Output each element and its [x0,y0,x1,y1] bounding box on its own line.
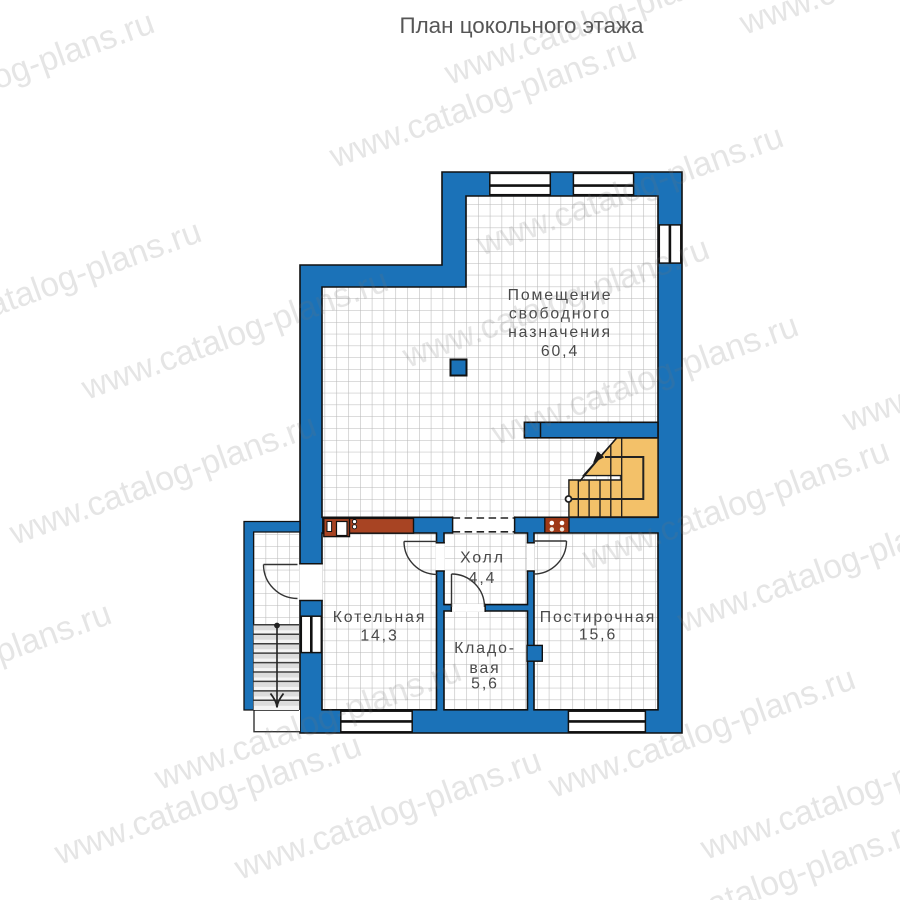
svg-text:Котельная: Котельная [333,609,427,626]
svg-text:5,6: 5,6 [471,676,499,693]
svg-text:60,4: 60,4 [541,343,579,360]
svg-text:вая: вая [469,660,500,677]
svg-text:Постирочная: Постирочная [540,609,657,626]
svg-text:Холл: Холл [460,550,505,567]
svg-text:14,3: 14,3 [360,628,398,645]
svg-text:4,4: 4,4 [469,570,497,587]
svg-text:15,6: 15,6 [579,627,617,644]
svg-text:Кладо-: Кладо- [454,640,516,657]
